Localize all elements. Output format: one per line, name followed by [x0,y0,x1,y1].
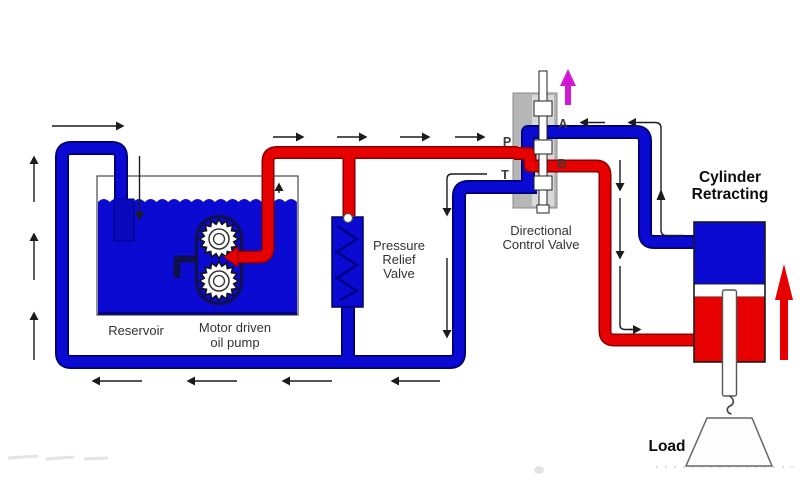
dcv-spool-nub [537,205,549,213]
port-label-b: B [557,157,566,171]
pressure-relief-valve [332,214,363,308]
load-label: Load [648,438,685,455]
port-label-a: A [558,117,567,131]
pump-label-line2: oil pump [210,335,259,350]
piston-motion-arrow-icon [775,264,793,360]
submerged-return-pipe [114,199,134,241]
a-line-pipe [557,132,695,242]
cylinder [694,222,765,414]
flow-arrow [657,189,666,200]
spool-arrow-head [560,69,576,86]
flow-line [620,266,632,330]
rod-hook-icon [727,396,733,414]
port-label-t: T [501,168,509,182]
cylinder-state-label-line2: Retracting [692,186,769,203]
dcv-spool-land [534,140,552,154]
hydraulic-diagram: Reservoir Motor driven oil pump Pressure… [0,0,800,500]
dcv-label-line1: Directional [510,223,572,238]
load-weight [686,418,772,466]
gear-bottom-shaft [214,276,225,287]
relief-valve-cap [344,214,353,223]
cylinder-state-label-line1: Cylinder [699,169,761,186]
dcv-label-line2: Control Valve [502,237,579,252]
spool-actuation-arrow-icon [560,69,576,105]
flow-line [447,174,487,179]
relief-valve-label-line1: Pressure [373,238,425,253]
piston-rod [723,290,737,396]
spool-arrow-shaft [565,84,571,105]
reservoir-label: Reservoir [108,323,164,338]
port-label-p: P [503,135,511,149]
dcv-spool-land [534,101,552,116]
hydraulic-diagram-canvas: Reservoir Motor driven oil pump Pressure… [0,0,800,500]
cylinder-cap-side-blue [694,222,765,284]
relief-valve-body [332,217,363,307]
dcv-spool-land [534,176,552,190]
relief-valve-label-line3: Valve [383,266,415,281]
motion-arrow-shaft [780,300,788,360]
pump-label-line1: Motor driven [199,320,271,335]
gear-top-shaft [214,234,225,245]
watermark-smudges [8,456,795,474]
relief-valve-label-line2: Relief [382,252,416,267]
motion-arrow-head [775,264,793,300]
